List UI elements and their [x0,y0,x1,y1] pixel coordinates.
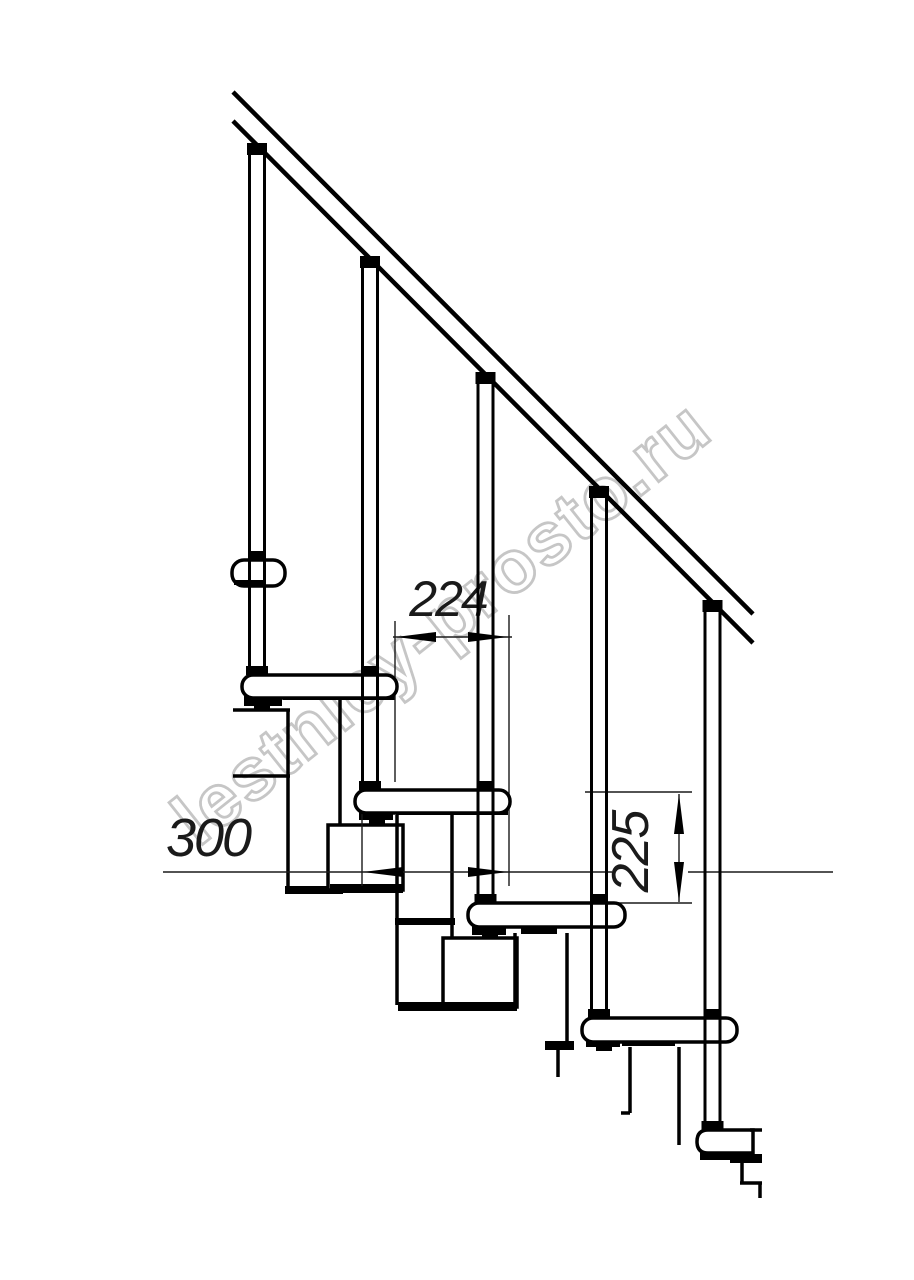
baluster-2-anchor [359,781,381,790]
baluster-2-washer [361,666,379,675]
module-under-tread-4 [586,1038,679,1145]
module-bridge-1-base [330,884,403,893]
tread-2 [355,790,510,813]
treads [232,560,762,1153]
bracket-2-tab [369,818,385,824]
module-under-tread-5 [700,1151,762,1198]
bracket-3-tab [482,933,498,939]
baluster-1-washer [248,551,266,560]
module-bridge-2 [443,938,517,1007]
arrow-225-up [674,794,684,834]
baluster-3-anchor [475,894,497,903]
arrow-300-right [468,867,508,877]
tread-3 [468,903,625,927]
dim-text-300: 300 [166,808,252,868]
arrow-225-down [674,862,684,902]
staircase-drawing: lestnicy-prosto.ru [0,0,914,1280]
baluster-5 [702,600,724,1130]
baluster-1 [246,143,268,675]
bracket-4-tab [596,1045,612,1051]
baluster-1-anchor [246,666,268,675]
dimension-rise-225: 225 [585,792,692,903]
tread-4 [582,1018,737,1042]
module-bridge-2-base [398,1002,517,1011]
baluster-5-anchor [702,1121,724,1130]
baluster-4 [588,486,610,1018]
baluster-5-washer [704,1009,722,1018]
baluster-4-washer [590,894,608,903]
baluster-3-washer [477,781,495,790]
baluster-4-anchor [588,1009,610,1018]
column-3-base [545,1041,574,1050]
dim-text-225: 225 [602,809,660,894]
module-bridge-1 [328,825,403,890]
technical-drawing-page: lestnicy-prosto.ru [0,0,914,1280]
tread-5-shadow-edge [730,1154,762,1163]
tread-5 [697,1130,753,1153]
tread-1 [242,675,397,698]
column-2-divider [395,918,455,925]
baluster-4-post [592,493,607,1018]
dim-text-224: 224 [408,571,487,627]
baluster-5-post [705,607,720,1130]
baluster-1-post [250,150,265,675]
